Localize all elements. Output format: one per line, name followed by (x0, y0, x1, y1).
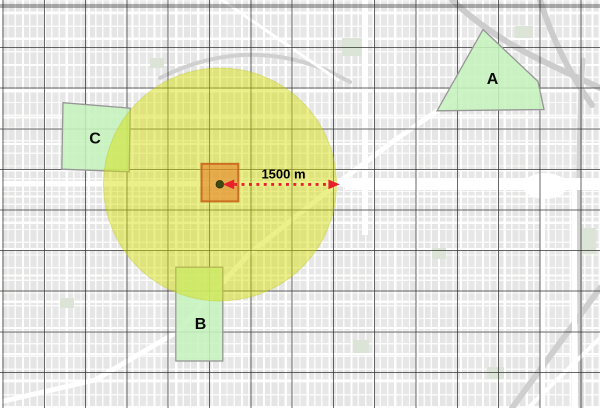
zone-a-label: A (487, 71, 499, 88)
center-point-marker (216, 181, 224, 189)
zone-c-label: C (89, 131, 101, 148)
zone-b-label: B (195, 316, 207, 333)
analysis-overlay: A C B 1500 m (0, 0, 600, 408)
map-viewport[interactable]: A C B 1500 m (0, 0, 600, 408)
distance-label: 1500 m (261, 167, 305, 182)
